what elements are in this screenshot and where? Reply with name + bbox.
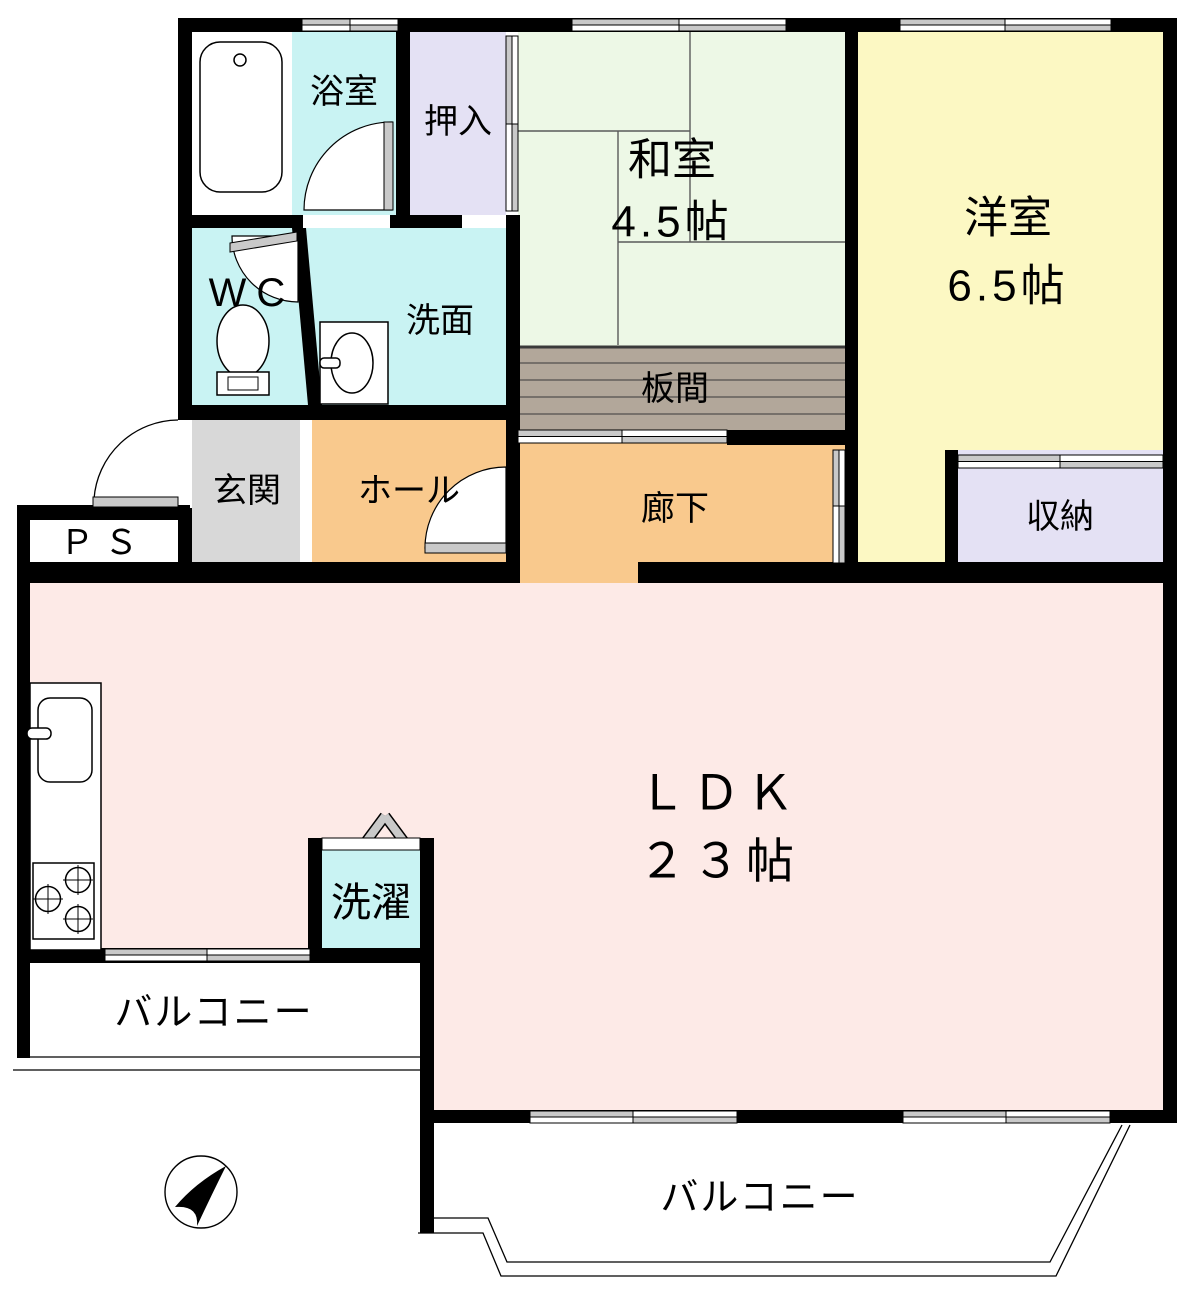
- label-sentaku: 洗濯: [331, 881, 411, 925]
- wall-bath-oshiire: [396, 32, 410, 215]
- wall-center-column: [506, 215, 520, 583]
- window-ldk-west: [105, 949, 310, 961]
- label-ldk-size: ２３帖: [638, 836, 800, 889]
- wall-sentaku-east: [420, 838, 434, 1123]
- north-arrow-icon: [165, 1156, 237, 1228]
- wall-ldk-top-east: [638, 562, 1177, 583]
- toilet-icon: [217, 305, 269, 395]
- window-bath: [302, 19, 398, 31]
- wall-itama-rouka: [727, 430, 845, 445]
- wall-balcony-west-edge: [17, 963, 30, 1058]
- sliding-door-itama: [518, 430, 727, 443]
- label-oshiire: 押入: [424, 103, 492, 141]
- wall-washitsu-youshitsu: [845, 32, 858, 583]
- label-senmen: 洗面: [406, 302, 474, 340]
- wall-balcony-south-west-edge: [420, 1123, 434, 1233]
- floor-plan-page: 浴室 押入 和室 4.5帖 洋室 6.5帖 WC 洗面 板間 玄関 ホール 廊下…: [0, 0, 1200, 1300]
- sliding-door-shuno: [958, 455, 1163, 468]
- label-bath: 浴室: [310, 73, 378, 111]
- stove-icon: [33, 863, 94, 939]
- kitchen-faucet-icon: [27, 728, 51, 739]
- label-shuno: 収納: [1026, 498, 1094, 536]
- bathtub-icon: [200, 42, 282, 192]
- label-youshitsu-size: 6.5帖: [947, 262, 1068, 311]
- window-ldk-south-2: [903, 1111, 1110, 1123]
- label-ldk: ＬＤＫ: [638, 768, 800, 821]
- floor-plan-drawing: 浴室 押入 和室 4.5帖 洋室 6.5帖 WC 洗面 板間 玄関 ホール 廊下…: [0, 0, 1200, 1300]
- label-balcony-west: バルコニー: [114, 992, 313, 1034]
- kitchen-counter-icon: [27, 683, 101, 950]
- wall-wc-genkan: [192, 405, 506, 420]
- wall-bath-south-1: [178, 215, 303, 228]
- room-washitsu: [518, 32, 845, 348]
- label-itama: 板間: [641, 370, 709, 408]
- label-ps: ＰＳ: [60, 524, 148, 562]
- label-wc: WC: [209, 271, 296, 315]
- wall-bath-south-2: [390, 215, 462, 228]
- door-entry: [93, 420, 178, 507]
- washbasin-icon: [320, 322, 388, 404]
- label-genkan: 玄関: [213, 472, 281, 510]
- wall-shuno-west: [945, 450, 958, 583]
- wall-sentaku-west: [308, 838, 322, 963]
- label-rouka: 廊下: [641, 490, 709, 528]
- kitchen-sink-icon: [38, 698, 92, 782]
- label-youshitsu: 洋室: [964, 194, 1052, 243]
- label-washitsu: 和室: [628, 136, 716, 185]
- window-ldk-south-1: [530, 1111, 737, 1123]
- window-youshitsu: [900, 19, 1111, 31]
- label-washitsu-size: 4.5帖: [611, 198, 732, 247]
- wall-ldk-top-west: [17, 562, 506, 583]
- sliding-door-oshiire: [506, 36, 518, 211]
- genkan-step: [300, 420, 312, 562]
- label-hall: ホール: [358, 472, 460, 510]
- label-balcony-south: バルコニー: [660, 1177, 859, 1219]
- sliding-door-rouka-youshitsu: [833, 450, 845, 563]
- window-washitsu: [572, 19, 786, 31]
